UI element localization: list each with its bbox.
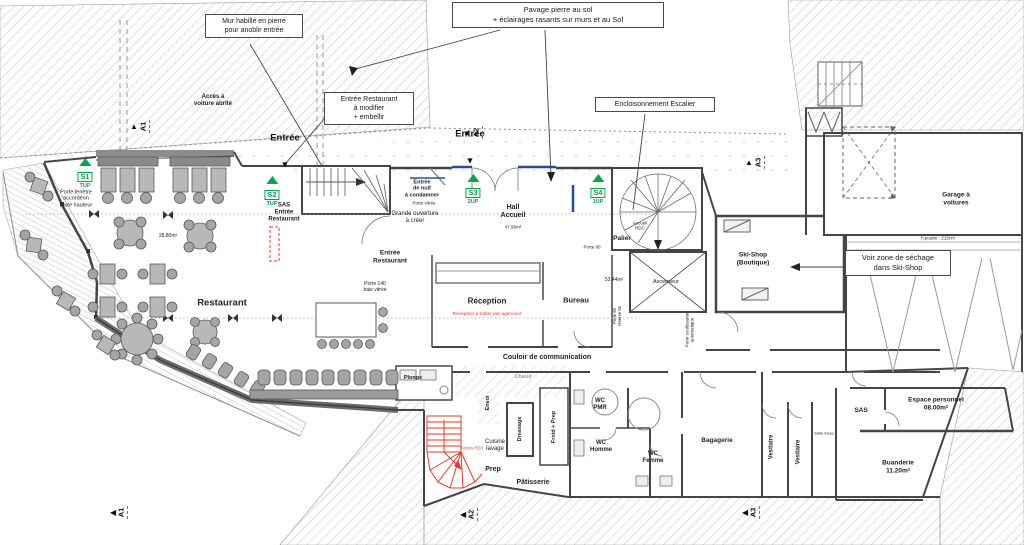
callout-entree-restaurant: Entrée Restaurant à modifier + embellir <box>324 92 414 125</box>
entrance-arrow-icon: ▼ <box>455 158 485 163</box>
note-entree-restaurant: Entrée Restaurant <box>373 249 407 264</box>
stair-marker-dir: 1UP <box>590 200 605 206</box>
section-marker-a1-bottom: ◀ A1 <box>110 506 128 519</box>
reception-counter <box>436 263 540 283</box>
note-accueil-rdc: Accueil RDC <box>633 221 648 232</box>
room-label-wc-femme: WC Femme <box>642 451 663 465</box>
room-label-restaurant: Restaurant <box>197 297 247 308</box>
section-marker-a2-top: ▲ A2 <box>463 126 483 139</box>
room-label-vestiaire-2: Vestiaire <box>795 440 802 465</box>
section-arrow-icon: ▲ <box>463 129 471 137</box>
room-label-prep: Prep <box>485 466 501 474</box>
room-label-plonge: Plonge <box>404 375 422 381</box>
stair-marker-s3: S3 2UP <box>465 174 480 206</box>
room-label-wc-pmr: WC PMR <box>593 398 606 412</box>
section-marker-a2-bottom: ◀ A2 <box>460 508 478 521</box>
room-label-garage: Garage à voitures <box>942 191 970 206</box>
room-label-vestiaire-1: Vestiaire <box>768 435 775 460</box>
note-entree-nuit: Entrée de nuit à condamner <box>405 179 439 198</box>
section-marker-a3-bottom: ◀ A3 <box>742 506 760 519</box>
note-porte-140: Porte 140 baie vitrée <box>363 282 386 294</box>
room-label-buanderie: Buanderie 11.20m² <box>882 459 914 474</box>
entrance-label-right: Entrée ▼ <box>455 109 485 182</box>
note-hpoutre: h.poutre : 215cm <box>921 235 955 240</box>
room-label-froid-prep: Froid + Prep <box>551 411 557 443</box>
section-arrow-icon: ◀ <box>742 509 748 517</box>
stair-marker-id: S4 <box>590 188 605 198</box>
stair-up-triangle-icon <box>79 158 91 166</box>
section-line <box>149 120 150 133</box>
section-line <box>759 506 760 519</box>
room-label-salle-eau: Salle d'eau <box>814 432 834 437</box>
room-label-envoi: Envoi <box>485 396 491 411</box>
room-label-chaud: Chaud <box>514 374 531 380</box>
callout-mur-pierre: Mur habillé en pierre pour anoblir entré… <box>205 14 303 38</box>
stair-marker-s4: S4 1UP <box>590 174 605 206</box>
floor-plan: Mur habillé en pierre pour anoblir entré… <box>0 0 1024 545</box>
room-label-palier: Palier <box>613 235 631 243</box>
entrance-left-text: Entrée <box>270 132 300 143</box>
section-arrow-icon: ▲ <box>745 159 753 167</box>
section-line <box>482 126 483 139</box>
section-marker-label: A2 <box>471 128 480 138</box>
section-arrow-icon: ◀ <box>110 509 116 517</box>
stair-up-triangle-icon <box>592 174 604 182</box>
room-label-dressage: Dressage <box>517 417 523 442</box>
section-line <box>127 506 128 519</box>
note-acces-voiture: Accès à voiture abrité <box>194 94 232 108</box>
stair-marker-s1: S1 TUP <box>77 158 92 190</box>
section-marker-a3-top: ▲ A3 <box>745 156 765 169</box>
section-marker-label: A2 <box>466 510 475 520</box>
stair-marker-id: S3 <box>465 188 480 198</box>
note-acces-rdj: Accès RDJ <box>461 445 483 450</box>
room-label-bagagerie: Bagagerie <box>701 437 732 445</box>
garage-upper-stair <box>818 62 862 106</box>
section-marker-label: A3 <box>748 508 757 518</box>
section-arrow-icon: ▲ <box>130 123 138 131</box>
note-porte-90-reserve: Porte 90 réserve 55 <box>613 306 623 326</box>
stair-up-triangle-icon <box>467 174 479 182</box>
room-label-skishop: Ski-Shop (Boutique) <box>737 251 770 266</box>
note-porte-90: Porte 90 <box>583 244 600 249</box>
section-line <box>477 508 478 521</box>
stair-up-triangle-icon <box>266 176 278 184</box>
room-label-cuisine-lavage: Cuisine lavage <box>485 439 505 453</box>
room-label-espace-personnel: Espace personnel 08.00m² <box>908 396 964 411</box>
stair-marker-dir: TUP <box>264 202 279 208</box>
callout-encloisonnement: Encloisonnement Escalier <box>595 97 715 112</box>
entrance-arrow-icon: ▼ <box>270 162 300 167</box>
room-label-bureau: Bureau <box>563 297 589 306</box>
room-label-hall: Hall Accueil <box>501 204 526 221</box>
note-reception: Réception à traiter par agenceur <box>453 312 522 318</box>
section-line <box>764 156 765 169</box>
hall-spiral-stair <box>620 174 696 250</box>
demolition-mark-red <box>270 227 279 261</box>
callout-pavage: Pavage pierre au sol + éclairages rasant… <box>452 2 664 28</box>
section-arrow-icon: ◀ <box>460 511 466 519</box>
area-label-zone-bureau: 53.44m² <box>605 278 623 284</box>
note-porte-vitree: Porte vitrée <box>412 200 435 205</box>
room-label-couloir: Couloir de communication <box>503 354 591 362</box>
service-spiral-stair-red <box>427 416 482 488</box>
room-label-patisserie: Pâtisserie <box>516 479 549 487</box>
room-label-ascenseur: Ascenseur <box>653 279 679 285</box>
section-marker-label: A1 <box>138 122 147 132</box>
area-label-hall: 47.96m² <box>505 224 522 229</box>
section-marker-label: A3 <box>753 158 762 168</box>
stair-marker-id: S1 <box>77 172 92 182</box>
section-marker-label: A1 <box>116 508 125 518</box>
stair-marker-dir: TUP <box>77 184 92 190</box>
note-porte-coulissante: Porte coulissante automatique <box>685 313 696 348</box>
section-marker-a1-top: ▲ A1 <box>130 120 150 133</box>
note-grande-ouverture: Grande ouverture à créer <box>391 211 438 225</box>
stair-marker-dir: 2UP <box>465 200 480 206</box>
area-label-restaurant: 28.80m² <box>159 234 177 240</box>
note-porte-fenetre: Porte fenêtre accordéon toute hauteur <box>60 189 92 208</box>
stair-marker-id: S2 <box>264 190 279 200</box>
callout-sechage: Voir zone de séchage dans Ski-Shop <box>845 250 951 276</box>
room-label-sas-perso: SAS <box>854 407 867 415</box>
room-label-reception: Réception <box>468 296 507 305</box>
room-label-wc-homme: WC Homme <box>590 440 612 454</box>
stair-marker-s2: S2 TUP <box>264 176 279 208</box>
